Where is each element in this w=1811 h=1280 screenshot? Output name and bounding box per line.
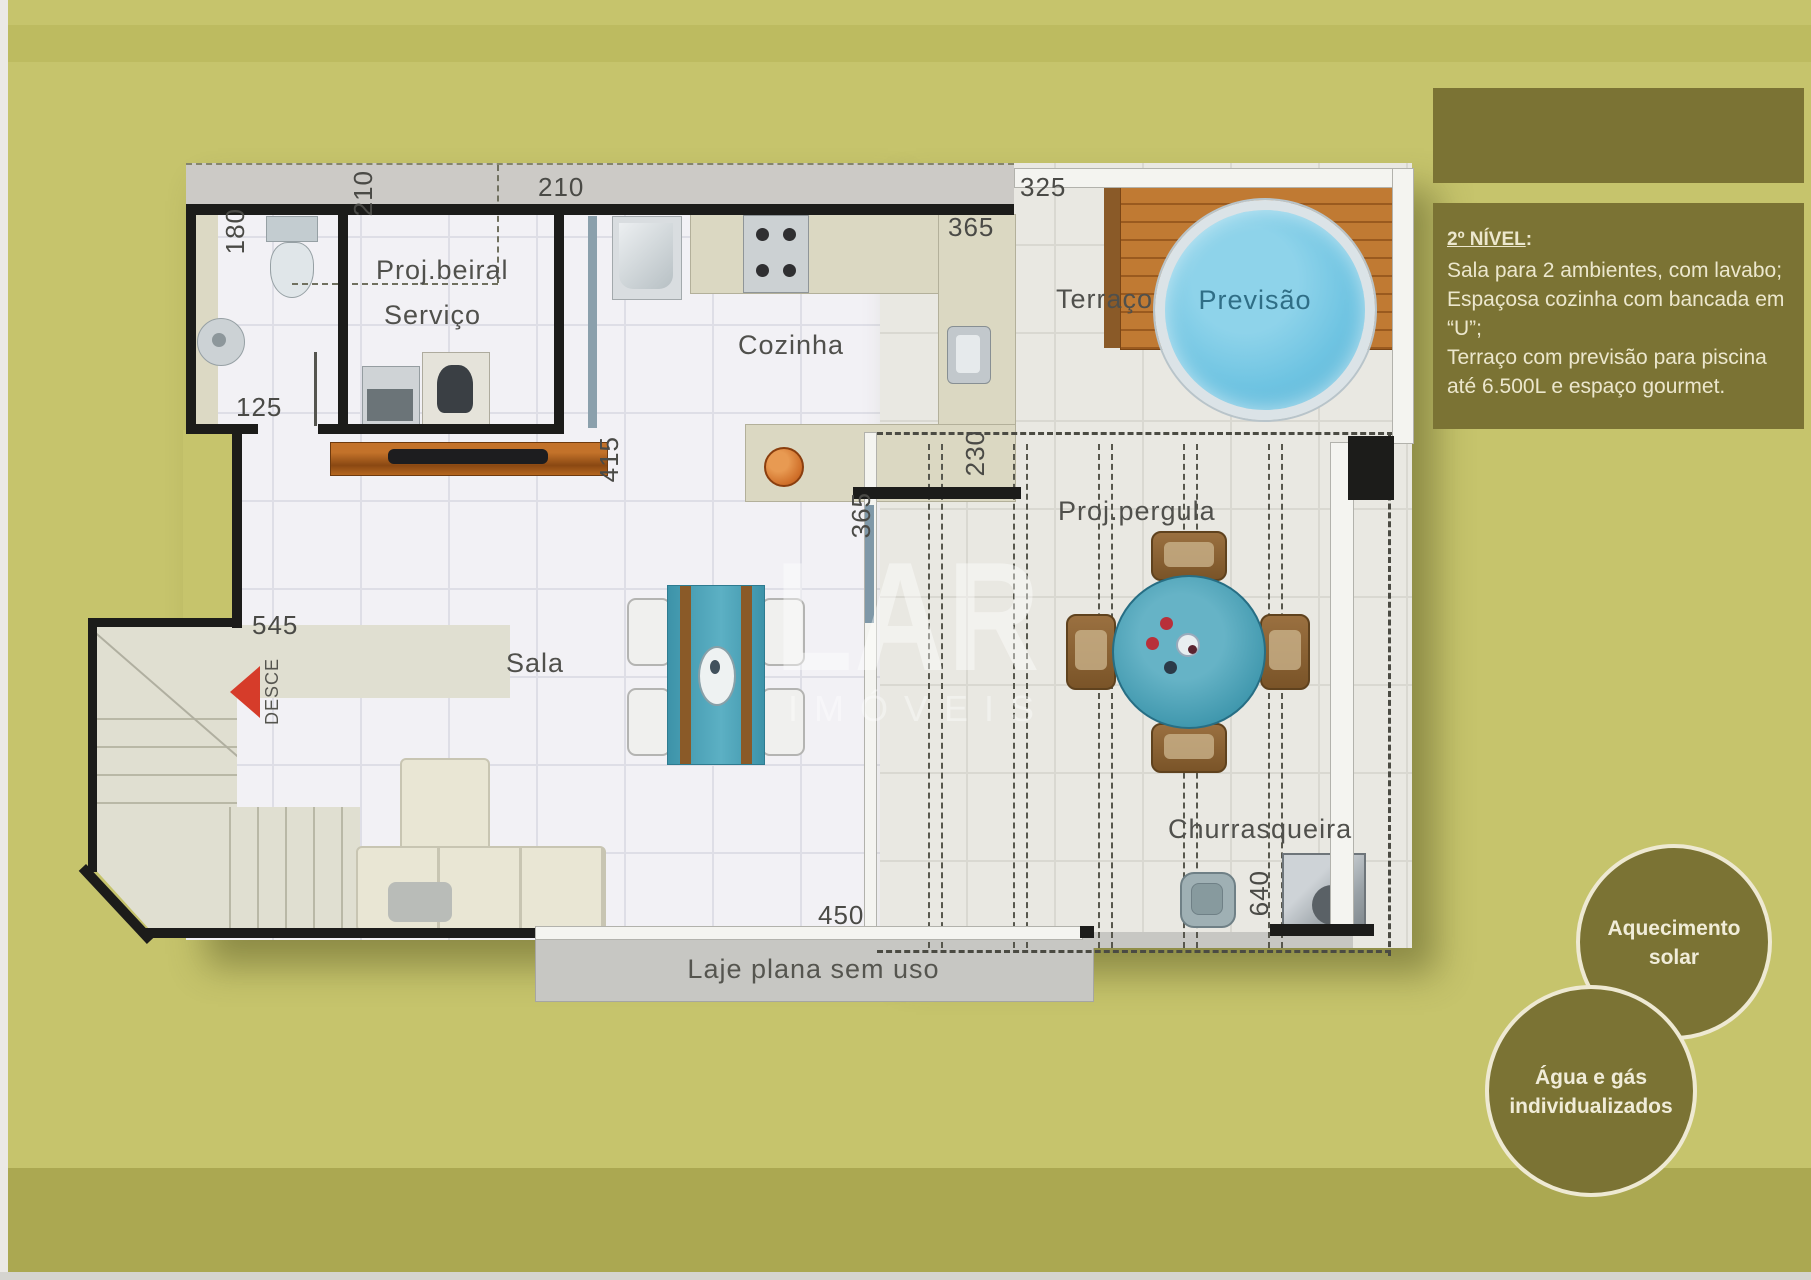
wall-kitchen-pergola <box>853 487 1021 499</box>
bathroom-door-leaf <box>314 352 317 426</box>
watermark-subtitle: IMÓVEIS <box>788 688 1050 730</box>
wall-stairs-top <box>88 618 240 627</box>
label-desce: DESCE <box>262 658 283 725</box>
pergola-projection-dashed-right <box>1388 432 1391 956</box>
dim-230: 230 <box>960 430 991 476</box>
pergola-parapet-right <box>1330 442 1354 936</box>
dining-chair <box>627 688 671 756</box>
dim-415: 415 <box>594 436 625 482</box>
wood-deck-edge <box>1104 186 1120 348</box>
kitchen-sink-icon <box>947 326 991 384</box>
label-proj-beiral: Proj.beiral <box>376 255 509 286</box>
terrace-parapet-right <box>1392 168 1414 444</box>
badge-text: solar <box>1580 943 1768 972</box>
background-band-top <box>0 25 1811 62</box>
dining-chair <box>627 598 671 666</box>
info-line: até 6.500L e espaço gourmet. <box>1447 372 1786 401</box>
page-edge-strip-bottom <box>0 1272 1811 1280</box>
wall-pergola-bottom <box>1270 924 1374 936</box>
label-proj-pergula: Proj.pergula <box>1058 496 1216 527</box>
outdoor-chair <box>1151 531 1227 581</box>
outdoor-chair <box>1151 723 1227 773</box>
label-previsao: Previsão <box>1155 200 1355 400</box>
label-churrasqueira: Churrasqueira <box>1168 814 1352 845</box>
dim-545: 545 <box>252 610 298 641</box>
floorplan-cutout-notch <box>183 430 235 628</box>
sofa-cushion <box>388 882 452 922</box>
info-title: 2º NÍVEL: <box>1447 229 1786 251</box>
badge-agua-gas: Água e gás individualizados <box>1485 985 1697 1197</box>
badge-text: individualizados <box>1489 1092 1693 1121</box>
pergola-projection-dashed-top <box>877 432 1393 435</box>
laundry-tank-icon <box>422 352 490 428</box>
roof-eave-band <box>186 163 1014 207</box>
dim-210-horizontal: 210 <box>538 172 584 203</box>
table-centerpiece-icon <box>698 646 736 706</box>
washing-machine-icon <box>362 366 420 428</box>
badge-text: Água e gás <box>1489 1063 1693 1092</box>
outdoor-chair <box>1260 614 1310 690</box>
watermark-logo: LAR <box>775 528 1041 706</box>
kitchen-window-strip <box>588 216 597 428</box>
dim-450: 450 <box>818 900 864 931</box>
badge-text: Aquecimento <box>1580 914 1768 943</box>
stove-icon <box>743 215 809 293</box>
bathroom-sink-icon <box>197 318 245 366</box>
tv-icon <box>388 449 548 464</box>
outdoor-chair <box>1066 614 1116 690</box>
label-sala: Sala <box>506 648 564 679</box>
info-line: “U”; <box>1447 314 1786 343</box>
wall-bathroom-left <box>186 204 196 434</box>
label-terraco: Terraço <box>1056 284 1153 315</box>
info-header-block <box>1433 88 1804 183</box>
toilet-icon <box>270 242 314 298</box>
fruit-bowl-icon <box>764 447 804 487</box>
info-line: Sala para 2 ambientes, com lavabo; <box>1447 256 1786 285</box>
stairs-steps-lower <box>203 807 360 930</box>
info-panel: 2º NÍVEL: Sala para 2 ambientes, com lav… <box>1433 203 1804 429</box>
dim-640: 640 <box>1244 870 1275 916</box>
wall-stairs-left <box>88 618 97 872</box>
sofa-chaise <box>400 758 490 852</box>
wall-bathroom-bottom <box>186 424 258 434</box>
terrace-parapet-top <box>1014 168 1414 188</box>
dim-180: 180 <box>220 208 251 254</box>
stairs-down-arrow-icon <box>230 666 260 718</box>
dim-210-vertical: 210 <box>348 170 379 216</box>
toilet-tank <box>266 216 318 242</box>
outdoor-round-table <box>1112 575 1266 729</box>
wall-service-bottom <box>346 424 564 434</box>
dim-325: 325 <box>1020 172 1066 203</box>
dim-125: 125 <box>236 392 282 423</box>
wall-pillar-right <box>1348 436 1394 500</box>
wall-cap <box>1080 926 1094 938</box>
wall-service-right <box>554 204 564 434</box>
fridge-icon <box>612 216 682 300</box>
wall-bottom <box>143 928 535 938</box>
info-line: Terraço com previsão para piscina <box>1447 343 1786 372</box>
label-cozinha: Cozinha <box>738 330 844 361</box>
page-edge-strip-left <box>0 0 8 1280</box>
wall-top <box>186 204 1014 215</box>
wall-bathroom-right <box>338 204 348 432</box>
wall-sala-left <box>232 428 242 628</box>
outdoor-side-table <box>1180 872 1236 928</box>
label-servico: Serviço <box>384 300 481 331</box>
label-laje-plana: Laje plana sem uso <box>535 938 1092 1000</box>
info-line: Espaçosa cozinha com bancada em <box>1447 285 1786 314</box>
stairs-steps-upper <box>94 692 237 810</box>
dim-365-cozinha: 365 <box>948 212 994 243</box>
flyer-page: Proj.beiral Serviço Cozinha Terraço Prev… <box>0 0 1811 1280</box>
